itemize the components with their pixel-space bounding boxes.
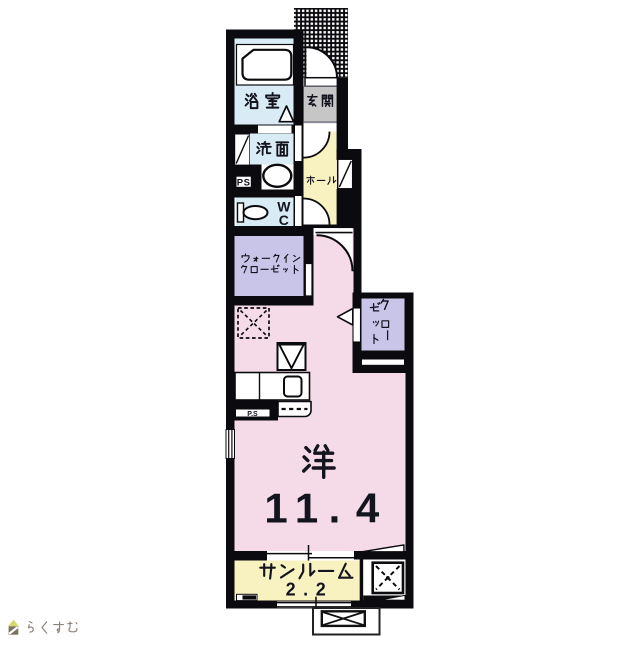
svg-text:1: 1	[264, 485, 287, 532]
svg-text:C: C	[279, 212, 289, 228]
svg-text:2: 2	[316, 579, 326, 599]
svg-text:2: 2	[286, 579, 296, 599]
svg-text:PS: PS	[237, 178, 251, 189]
svg-text:P.S: P.S	[247, 411, 258, 418]
svg-text:.: .	[303, 579, 308, 599]
svg-text:4: 4	[356, 485, 380, 532]
svg-text:1: 1	[295, 485, 318, 532]
svg-text:.: .	[329, 485, 341, 532]
